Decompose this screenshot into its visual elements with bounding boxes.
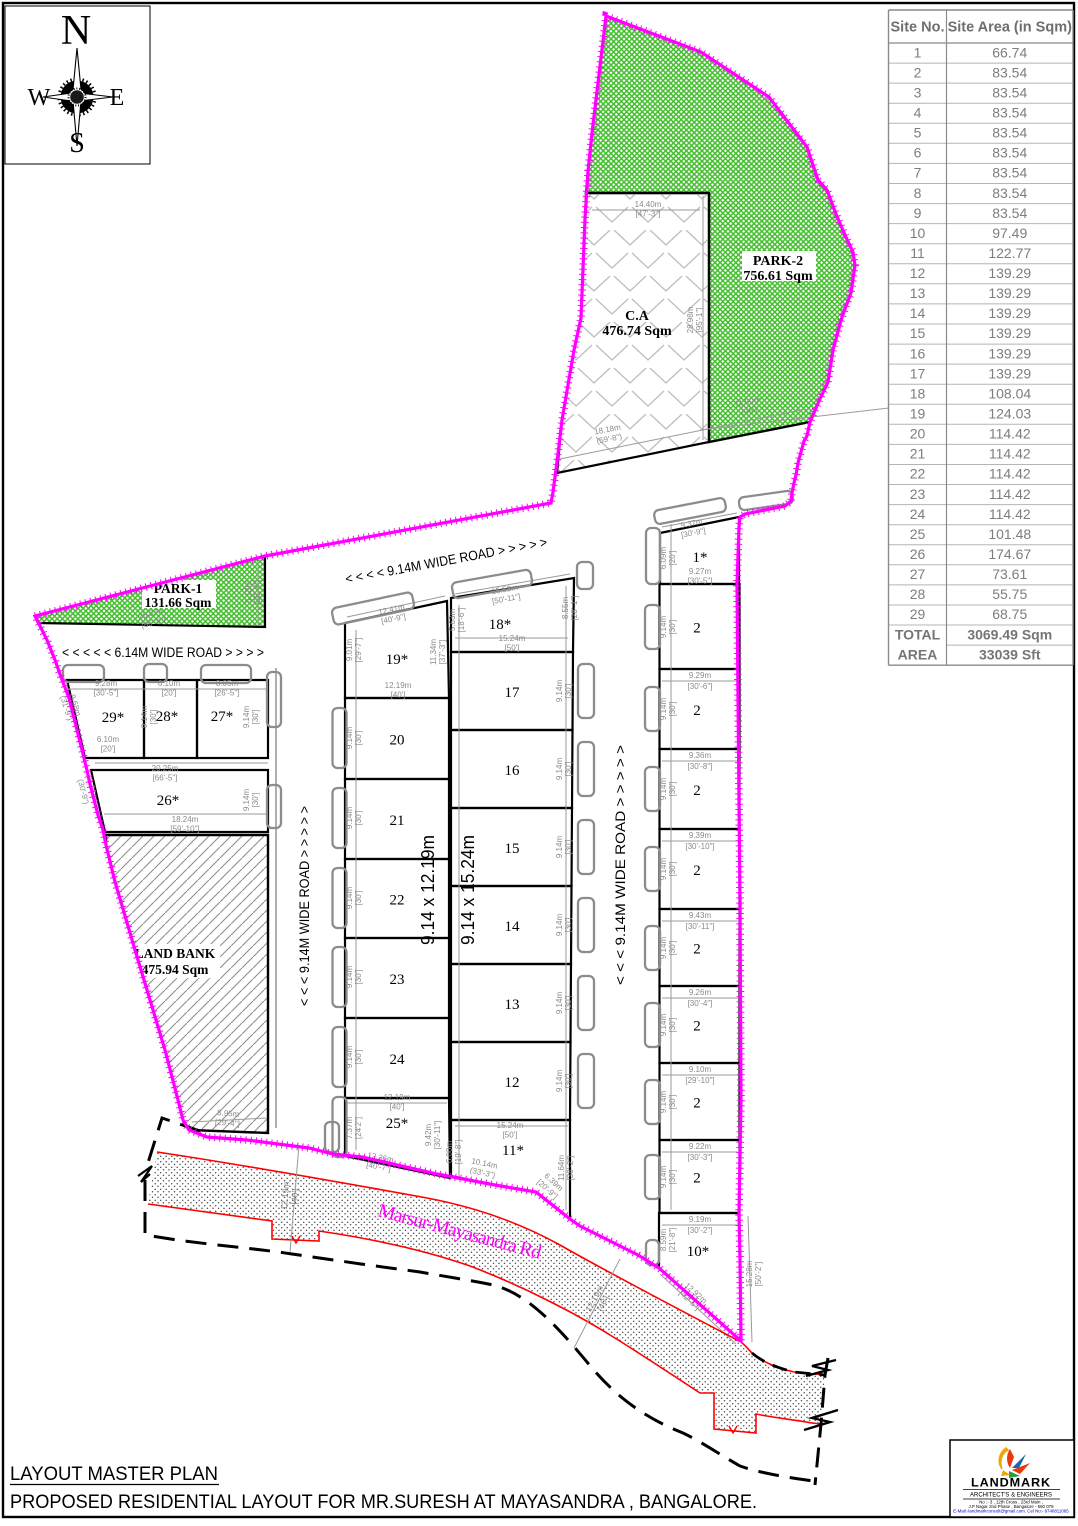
svg-text:97.49: 97.49 xyxy=(992,225,1027,241)
svg-text:AREA: AREA xyxy=(898,647,938,663)
svg-text:[50'-2"]: [50'-2"] xyxy=(754,1262,763,1287)
svg-text:[47'-3"]: [47'-3"] xyxy=(636,210,661,219)
svg-text:9: 9 xyxy=(914,205,922,221)
svg-text:< < < 9.14M WIDE ROAD > > > >: < < < 9.14M WIDE ROAD > > > > > xyxy=(297,806,312,1006)
svg-text:[26'-8"]: [26'-8"] xyxy=(253,580,262,605)
svg-text:9.14m: 9.14m xyxy=(555,836,564,859)
svg-text:174.67: 174.67 xyxy=(988,546,1031,562)
svg-text:22: 22 xyxy=(390,893,405,909)
svg-text:[50']: [50'] xyxy=(505,644,520,653)
svg-text:N: N xyxy=(61,8,91,54)
svg-text:6.10m: 6.10m xyxy=(158,679,181,688)
svg-text:[30']: [30'] xyxy=(251,710,260,725)
svg-text:[30']: [30'] xyxy=(668,1095,677,1110)
svg-text:9.01m: 9.01m xyxy=(345,639,354,662)
svg-text:[30']: [30'] xyxy=(668,620,677,635)
svg-text:21: 21 xyxy=(910,446,926,462)
svg-text:[30']: [30'] xyxy=(564,762,573,777)
svg-text:19*: 19* xyxy=(386,652,409,668)
svg-text:139.29: 139.29 xyxy=(988,305,1031,321)
svg-text:8: 8 xyxy=(914,185,922,201)
svg-text:139.29: 139.29 xyxy=(988,345,1031,361)
svg-text:26: 26 xyxy=(910,546,926,562)
svg-text:S: S xyxy=(69,128,85,159)
svg-text:24: 24 xyxy=(910,506,926,522)
svg-text:9.14m: 9.14m xyxy=(140,706,149,729)
svg-text:11*: 11* xyxy=(502,1143,524,1159)
svg-text:9.14m: 9.14m xyxy=(555,680,564,703)
svg-text:E: E xyxy=(110,85,125,111)
svg-text:25: 25 xyxy=(910,526,926,542)
svg-text:9.36m: 9.36m xyxy=(689,751,712,760)
svg-text:13: 13 xyxy=(910,285,926,301)
svg-text:3069.49 Sqm: 3069.49 Sqm xyxy=(967,626,1052,642)
svg-text:2: 2 xyxy=(693,1171,701,1187)
svg-text:28: 28 xyxy=(910,586,926,602)
svg-text:< < < < 9.14M WIDE ROAD > > >: < < < < 9.14M WIDE ROAD > > > > > xyxy=(344,535,548,587)
svg-text:122.77: 122.77 xyxy=(988,245,1031,261)
svg-text:28*: 28* xyxy=(156,709,179,725)
svg-text:C.A: C.A xyxy=(625,309,650,324)
svg-text:9.26m: 9.26m xyxy=(689,988,712,997)
svg-text:15: 15 xyxy=(505,841,520,857)
svg-text:9.28m: 9.28m xyxy=(95,679,118,688)
svg-text:Site Area (in Sqm): Site Area (in Sqm) xyxy=(948,20,1073,36)
svg-text:[29'-7"]: [29'-7"] xyxy=(354,638,363,663)
svg-text:83.54: 83.54 xyxy=(992,205,1027,221)
svg-text:7: 7 xyxy=(914,165,922,181)
svg-text:[30']: [30'] xyxy=(668,862,677,877)
svg-text:[30']: [30'] xyxy=(668,1018,677,1033)
svg-text:[30']: [30'] xyxy=(564,684,573,699)
svg-text:475.94 Sqm: 475.94 Sqm xyxy=(142,962,210,977)
svg-text:9.14m: 9.14m xyxy=(242,706,251,729)
svg-text:139.29: 139.29 xyxy=(988,285,1031,301)
svg-text:[30']: [30'] xyxy=(564,918,573,933)
svg-text:73.61: 73.61 xyxy=(992,566,1027,582)
svg-text:6.00m: 6.00m xyxy=(445,1141,454,1164)
svg-text:[30'-6"]: [30'-6"] xyxy=(688,682,713,691)
svg-text:Site No.: Site No. xyxy=(891,20,945,36)
svg-text:5: 5 xyxy=(914,125,922,141)
svg-text:2: 2 xyxy=(693,863,701,879)
svg-text:9.14m: 9.14m xyxy=(555,1070,564,1093)
svg-text:28.98m: 28.98m xyxy=(686,306,695,333)
svg-text:[30']: [30'] xyxy=(668,1170,677,1185)
svg-text:83.54: 83.54 xyxy=(992,165,1027,181)
svg-text:16: 16 xyxy=(505,763,521,779)
svg-text:[18'-6"]: [18'-6"] xyxy=(457,608,466,633)
svg-text:[30'-11"]: [30'-11"] xyxy=(433,1121,442,1150)
svg-text:[26'-5"]: [26'-5"] xyxy=(215,689,240,698)
svg-text:114.42: 114.42 xyxy=(989,486,1031,502)
svg-text:< < < 9.14M WIDE ROAD > > > >: < < < 9.14M WIDE ROAD > > > > > xyxy=(613,745,628,985)
svg-text:2: 2 xyxy=(693,942,701,958)
svg-text:124.03: 124.03 xyxy=(988,406,1031,422)
svg-text:139.29: 139.29 xyxy=(988,265,1031,281)
svg-text:83.54: 83.54 xyxy=(992,125,1027,141)
svg-text:18*: 18* xyxy=(489,617,512,633)
svg-text:[30'-10"]: [30'-10"] xyxy=(685,842,714,851)
svg-text:114.42: 114.42 xyxy=(989,426,1031,442)
svg-text:2: 2 xyxy=(693,783,701,799)
svg-text:[30']: [30'] xyxy=(668,941,677,956)
svg-text:[30']: [30'] xyxy=(251,793,260,808)
svg-text:19: 19 xyxy=(910,406,926,422)
svg-text:PROPOSED RESIDENTIAL LAYOUT FO: PROPOSED RESIDENTIAL LAYOUT FOR MR.SURES… xyxy=(10,1491,757,1513)
svg-text:1*: 1* xyxy=(693,550,708,566)
svg-text:LANDMARK: LANDMARK xyxy=(971,1478,1051,1490)
svg-text:[20']: [20'] xyxy=(162,689,177,698)
svg-text:83.54: 83.54 xyxy=(992,105,1027,121)
svg-text:[24'2"]: [24'2"] xyxy=(354,1117,363,1139)
svg-text:[30'-2"]: [30'-2"] xyxy=(688,1226,713,1235)
svg-text:9.27m: 9.27m xyxy=(689,567,712,576)
svg-text:21: 21 xyxy=(390,813,405,829)
svg-text:18: 18 xyxy=(910,386,926,402)
svg-text:ARCHITECT'S & ENGINEERS: ARCHITECT'S & ENGINEERS xyxy=(970,1492,1053,1499)
svg-text:[59'-10"]: [59'-10"] xyxy=(170,825,199,834)
svg-text:27*: 27* xyxy=(211,709,234,725)
svg-text:14.40m: 14.40m xyxy=(635,200,662,209)
svg-text:114.42: 114.42 xyxy=(989,506,1031,522)
svg-text:[38'-2"]: [38'-2"] xyxy=(566,1156,575,1181)
svg-text:9.22m: 9.22m xyxy=(689,1142,712,1151)
svg-text:[30']: [30'] xyxy=(354,811,363,826)
svg-text:2: 2 xyxy=(693,703,701,719)
svg-text:4: 4 xyxy=(914,105,922,121)
svg-text:[30']: [30'] xyxy=(149,710,158,725)
svg-text:5.63m: 5.63m xyxy=(448,609,457,632)
svg-text:22: 22 xyxy=(910,466,926,482)
svg-text:26*: 26* xyxy=(157,793,180,809)
svg-text:16: 16 xyxy=(910,345,926,361)
svg-text:15.28m: 15.28m xyxy=(745,1260,754,1287)
svg-text:12.19m: 12.19m xyxy=(384,1093,411,1102)
svg-text:12.19m: 12.19m xyxy=(385,681,412,690)
svg-text:2: 2 xyxy=(693,621,701,637)
svg-text:24: 24 xyxy=(390,1052,406,1068)
svg-text:15.24m: 15.24m xyxy=(497,1121,524,1130)
svg-text:17: 17 xyxy=(505,685,521,701)
svg-text:6.10m: 6.10m xyxy=(97,735,120,744)
svg-text:[30'-5"]: [30'-5"] xyxy=(688,577,713,586)
svg-text:101.48: 101.48 xyxy=(988,526,1031,542)
svg-text:9.42m: 9.42m xyxy=(424,1124,433,1147)
svg-text:83.54: 83.54 xyxy=(992,64,1027,80)
svg-text:8.13m: 8.13m xyxy=(244,581,253,604)
svg-text:< < < < < 6.14M WIDE ROAD > >: < < < < < 6.14M WIDE ROAD > > > > xyxy=(62,645,264,660)
svg-text:2: 2 xyxy=(914,64,922,80)
svg-text:27: 27 xyxy=(910,566,926,582)
svg-text:9.14m: 9.14m xyxy=(555,992,564,1015)
svg-text:83.54: 83.54 xyxy=(992,84,1027,100)
svg-text:9.39m: 9.39m xyxy=(689,831,712,840)
svg-text:[50']: [50'] xyxy=(503,1131,518,1140)
svg-text:[20']: [20'] xyxy=(668,551,677,566)
svg-text:1: 1 xyxy=(914,44,922,60)
svg-text:83.54: 83.54 xyxy=(992,185,1027,201)
svg-text:[30'-4"]: [30'-4"] xyxy=(688,999,713,1008)
svg-text:114.42: 114.42 xyxy=(989,466,1031,482)
svg-text:13: 13 xyxy=(505,997,520,1013)
svg-text:[95'-1"]: [95'-1"] xyxy=(695,308,704,333)
svg-text:[30']: [30'] xyxy=(564,996,573,1011)
svg-text:[66'-5"]: [66'-5"] xyxy=(153,774,178,783)
svg-text:83.54: 83.54 xyxy=(992,145,1027,161)
svg-text:[29'-10"]: [29'-10"] xyxy=(685,1076,714,1085)
svg-text:17: 17 xyxy=(910,365,926,381)
svg-text:139.29: 139.29 xyxy=(988,325,1031,341)
svg-text:10*: 10* xyxy=(687,1244,710,1260)
svg-text:W: W xyxy=(28,85,51,111)
svg-text:[30']: [30'] xyxy=(564,840,573,855)
svg-text:3: 3 xyxy=(914,84,922,100)
svg-text:[21'-8"]: [21'-8"] xyxy=(668,1228,677,1253)
svg-text:114.42: 114.42 xyxy=(989,446,1031,462)
svg-text:9.29m: 9.29m xyxy=(689,671,712,680)
svg-text:9.14 x 15.24m: 9.14 x 15.24m xyxy=(458,835,478,945)
svg-text:9.19m: 9.19m xyxy=(689,1215,712,1224)
svg-text:[40']: [40'] xyxy=(390,1103,405,1112)
svg-text:E-Mail:-landmarkconsult@gmail.: E-Mail:-landmarkconsult@gmail.com. Cel N… xyxy=(953,1509,1069,1514)
svg-text:9.43m: 9.43m xyxy=(689,911,712,920)
svg-text:TOTAL: TOTAL xyxy=(895,626,941,642)
svg-text:11.64m: 11.64m xyxy=(557,1155,566,1181)
svg-text:[40']: [40'] xyxy=(391,691,406,700)
svg-text:25*: 25* xyxy=(386,1116,409,1132)
svg-text:11: 11 xyxy=(910,245,925,261)
svg-text:2: 2 xyxy=(693,1096,701,1112)
svg-text:9.10m: 9.10m xyxy=(689,1065,712,1074)
svg-text:[19'-8"]: [19'-8"] xyxy=(454,1140,463,1165)
svg-text:[30']: [30'] xyxy=(354,1050,363,1065)
svg-text:[30']: [30'] xyxy=(668,782,677,797)
svg-text:23: 23 xyxy=(390,972,405,988)
svg-text:756.61 Sqm: 756.61 Sqm xyxy=(743,269,813,284)
svg-text:20: 20 xyxy=(390,733,405,749)
svg-text:6: 6 xyxy=(914,145,922,161)
svg-text:9.14m: 9.14m xyxy=(555,914,564,937)
svg-text:18.24m: 18.24m xyxy=(172,815,199,824)
svg-text:[30']: [30'] xyxy=(564,1074,573,1089)
svg-text:[30']: [30'] xyxy=(668,702,677,717)
svg-text:12: 12 xyxy=(910,265,926,281)
svg-text:15.24m: 15.24m xyxy=(499,634,526,643)
svg-text:66.74: 66.74 xyxy=(992,44,1027,60)
svg-text:[20']: [20'] xyxy=(101,745,116,754)
svg-text:[37'-3"]: [37'-3"] xyxy=(438,640,447,665)
svg-text:8.55m: 8.55m xyxy=(561,597,570,620)
svg-text:476.74 Sqm: 476.74 Sqm xyxy=(602,324,672,339)
svg-text:11.34m: 11.34m xyxy=(429,639,438,665)
svg-text:55.75: 55.75 xyxy=(992,586,1027,602)
svg-text:[30'-3"]: [30'-3"] xyxy=(688,1153,713,1162)
svg-text:[30']: [30'] xyxy=(354,731,363,746)
svg-text:[28'-1"]: [28'-1"] xyxy=(570,596,579,621)
svg-text:9.14 x 12.19m: 9.14 x 12.19m xyxy=(418,835,438,945)
svg-text:[30']: [30'] xyxy=(354,891,363,906)
svg-text:23: 23 xyxy=(910,486,926,502)
svg-text:[30'-11"]: [30'-11"] xyxy=(686,922,715,931)
svg-text:20.25m: 20.25m xyxy=(152,764,179,773)
svg-text:12: 12 xyxy=(505,1075,520,1091)
svg-text:9.14m: 9.14m xyxy=(555,758,564,781)
svg-text:14: 14 xyxy=(910,305,926,321)
svg-text:[30'-8"]: [30'-8"] xyxy=(688,762,713,771)
svg-text:LAND BANK: LAND BANK xyxy=(135,946,216,961)
svg-text:139.29: 139.29 xyxy=(988,365,1031,381)
svg-text:9.14m: 9.14m xyxy=(242,789,251,812)
svg-text:33039 Sft: 33039 Sft xyxy=(979,647,1041,663)
svg-text:[40']: [40'] xyxy=(289,1188,300,1205)
svg-text:29*: 29* xyxy=(102,710,125,726)
svg-text:2: 2 xyxy=(693,1019,701,1035)
svg-text:68.75: 68.75 xyxy=(992,606,1027,622)
svg-text:15: 15 xyxy=(910,325,926,341)
svg-text:8.59m: 8.59m xyxy=(659,1229,668,1252)
svg-text:PARK-2: PARK-2 xyxy=(753,254,803,269)
svg-text:[30'-5"]: [30'-5"] xyxy=(94,689,119,698)
svg-text:29: 29 xyxy=(910,606,926,622)
svg-text:14: 14 xyxy=(505,919,521,935)
svg-text:10: 10 xyxy=(910,225,926,241)
svg-text:108.04: 108.04 xyxy=(988,386,1031,402)
svg-text:[30']: [30'] xyxy=(354,970,363,985)
svg-text:20: 20 xyxy=(910,426,926,442)
svg-text:LAYOUT MASTER PLAN: LAYOUT MASTER PLAN xyxy=(10,1463,218,1485)
